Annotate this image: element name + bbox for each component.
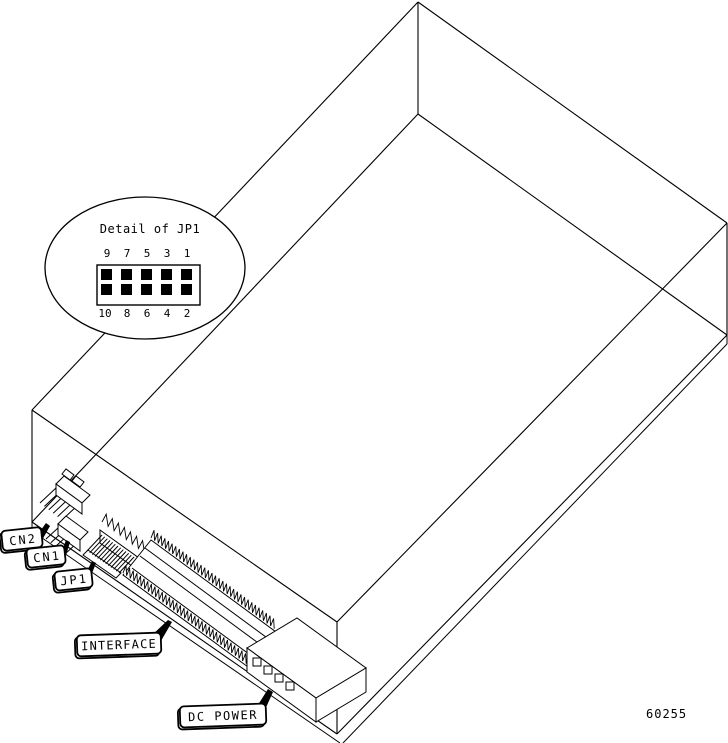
dc-power-pin-1 [253,658,261,666]
pin-square [181,284,192,295]
pin-number-1: 1 [184,247,191,260]
figure-number: 60255 [646,707,687,721]
base-plate-right-edge [343,344,727,743]
pin-square [161,269,172,280]
pin-square [101,269,112,280]
pin-number-8: 8 [124,307,131,320]
pin-number-6: 6 [144,307,151,320]
top-far-left-edge [32,2,418,410]
pin-square [101,284,112,295]
dc-power-callout: DC POWER [178,689,273,730]
pin-square [181,269,192,280]
cn1-label: CN1 [33,548,62,565]
dc-power-pin-4 [286,682,294,690]
bottom-near-right-edge [337,335,727,734]
jp1-callout: JP1 [52,561,96,593]
cn2-label: CN2 [9,531,38,548]
interface-callout: INTERFACE [75,620,172,659]
jp1-detail-balloon: Detail of JP1 9 7 5 3 1 10 8 6 4 2 [45,197,245,339]
pin-square [141,284,152,295]
drive-outline [32,2,727,743]
pin-number-7: 7 [124,247,131,260]
drive-diagram: CN2 CN1 JP1 INTERFACE DC POWER [0,0,728,743]
pin-square [161,284,172,295]
dc-power-label: DC POWER [188,708,258,724]
dc-power-pin-3 [275,674,283,682]
pin-square [121,269,132,280]
cn2-connector [40,469,90,520]
pin-number-5: 5 [144,247,151,260]
jp1-label: JP1 [60,571,89,588]
dc-power-pin-2 [264,666,272,674]
top-far-right-edge [418,2,727,223]
pin-number-3: 3 [164,247,171,260]
pin-number-9: 9 [104,247,111,260]
interface-label: INTERFACE [81,637,157,654]
balloon-title: Detail of JP1 [100,222,200,236]
pin-number-10: 10 [98,307,111,320]
pin-number-4: 4 [164,307,171,320]
pin-square [141,269,152,280]
top-near-right-edge [337,223,727,622]
pin-number-2: 2 [184,307,191,320]
bottom-far-right-edge [418,114,727,335]
pin-square [121,284,132,295]
